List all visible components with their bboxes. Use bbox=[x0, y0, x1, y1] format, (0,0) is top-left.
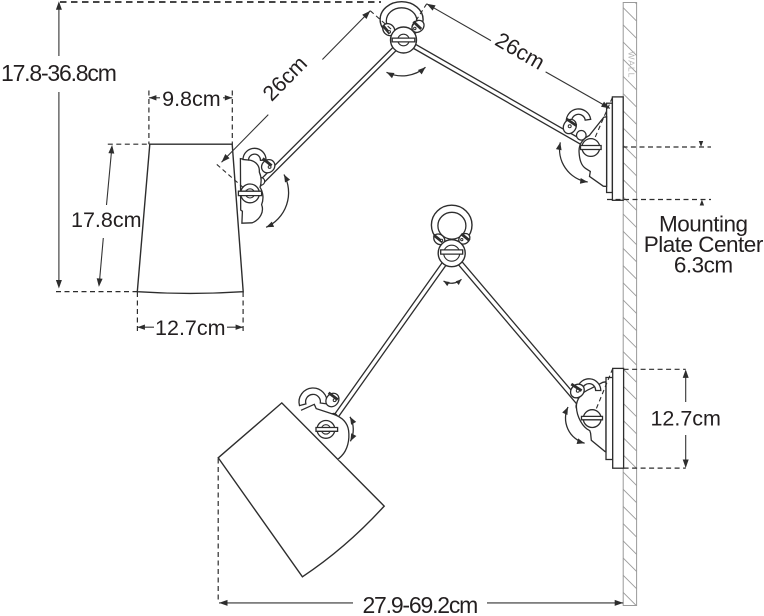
svg-text:9.8cm: 9.8cm bbox=[162, 87, 221, 111]
svg-text:17.8cm: 17.8cm bbox=[71, 208, 142, 232]
svg-text:26cm: 26cm bbox=[258, 51, 312, 105]
svg-text:WALL: WALL bbox=[626, 52, 636, 79]
svg-text:26cm: 26cm bbox=[491, 28, 549, 75]
svg-text:6.3cm: 6.3cm bbox=[674, 253, 733, 278]
svg-text:27.9-69.2cm: 27.9-69.2cm bbox=[362, 592, 477, 616]
svg-text:17.8-36.8cm: 17.8-36.8cm bbox=[1, 60, 116, 86]
svg-text:12.7cm: 12.7cm bbox=[650, 407, 721, 431]
svg-text:12.7cm: 12.7cm bbox=[155, 316, 226, 340]
